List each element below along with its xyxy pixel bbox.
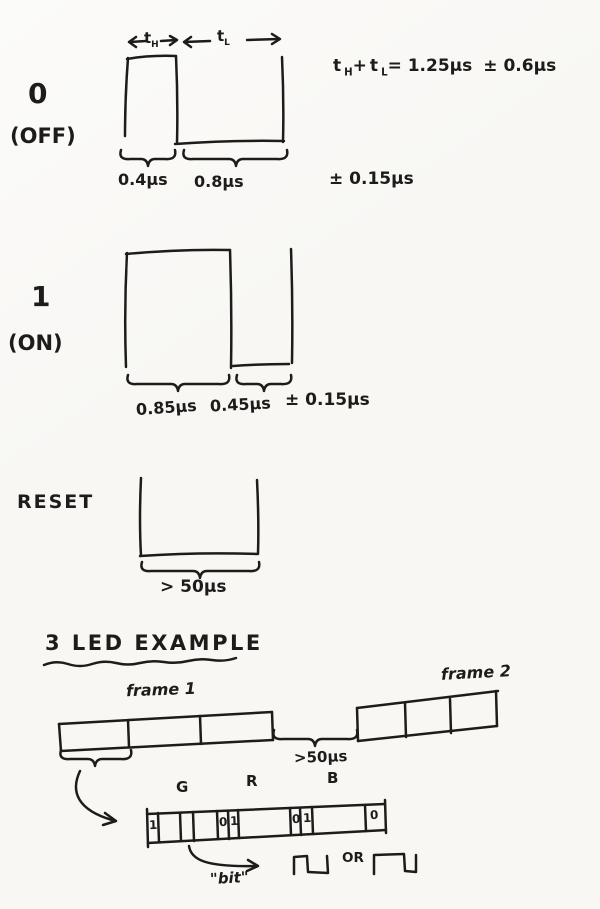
strip-bit-0: 1 [149, 819, 158, 831]
reset-min-time: > 50μs [160, 579, 226, 596]
strip-bit-4: 1 [303, 812, 312, 824]
reset-waveform [140, 478, 258, 556]
frame2-label: frame 2 [441, 663, 512, 683]
tl-dimension-label: tL [217, 29, 230, 48]
blue-channel-label: B [327, 771, 338, 786]
formula-tolerance: ± 0.6μs [483, 56, 556, 76]
bit1-state-label: (ON) [8, 333, 63, 354]
bit1-braces-icon [127, 375, 291, 391]
formula-t1-sub: H [344, 67, 353, 78]
strip-bit-3: 0 [292, 813, 301, 825]
strip-bit-1: 0 [219, 816, 228, 828]
frame-to-strip-arrow-icon [76, 771, 116, 825]
th-dimension-label: tH [144, 31, 159, 50]
or-label: OR [342, 852, 364, 866]
strip-bit-2: 1 [230, 815, 239, 827]
bit0-low-time: 0.8μs [194, 174, 244, 190]
frame1-box [59, 712, 273, 751]
bit0-state-label: (OFF) [10, 126, 76, 147]
bit0-high-time: 0.4μs [118, 172, 168, 188]
bit1-tolerance: ± 0.15μs [285, 392, 370, 409]
bit1-mini-waveform-icon [374, 854, 416, 874]
bit-callout-label: "bit" [210, 870, 249, 887]
green-channel-label: G [176, 780, 188, 795]
bit0-braces-icon [120, 150, 287, 166]
grb-bit-strip [147, 800, 386, 847]
frame2-box [357, 691, 498, 741]
period-formula: tH+tL= 1.25μs± 0.6μs [333, 58, 559, 79]
sketch-page: 0 (OFF) tH tL tH+tL= 1.25μs± 0.6μs 0.4μs… [0, 0, 600, 909]
frame-gap-brace-icon [273, 730, 357, 746]
bit1-value-label: 1 [31, 283, 50, 311]
formula-result: = 1.25μs [388, 56, 473, 76]
red-channel-label: R [246, 774, 258, 789]
bit0-mini-waveform-icon [294, 856, 328, 874]
formula-t2: t [370, 56, 378, 76]
bit0-waveform [125, 56, 284, 144]
bit0-tolerance: ± 0.15μs [329, 171, 414, 188]
example-title: 3 LED EXAMPLE [45, 633, 263, 654]
reset-brace-icon [141, 562, 259, 578]
title-underline-icon [44, 658, 236, 666]
formula-t1: t [333, 56, 341, 76]
frame1-cell-brace-icon [60, 750, 131, 766]
sketch-strokes [0, 0, 600, 909]
bit1-low-time: 0.45μs [210, 395, 272, 414]
bit1-waveform [125, 249, 292, 368]
bit0-value-label: 0 [28, 80, 47, 108]
reset-label: RESET [17, 493, 94, 512]
formula-t2-sub: L [381, 67, 388, 78]
frame1-label: frame 1 [126, 681, 196, 699]
th-sub: H [151, 40, 159, 50]
formula-plus: + [353, 56, 367, 76]
strip-bit-5: 0 [370, 809, 379, 821]
frame-gap-time: >50μs [294, 749, 348, 766]
bit1-high-time: 0.85μs [136, 398, 198, 418]
tl-sub: L [224, 38, 230, 48]
